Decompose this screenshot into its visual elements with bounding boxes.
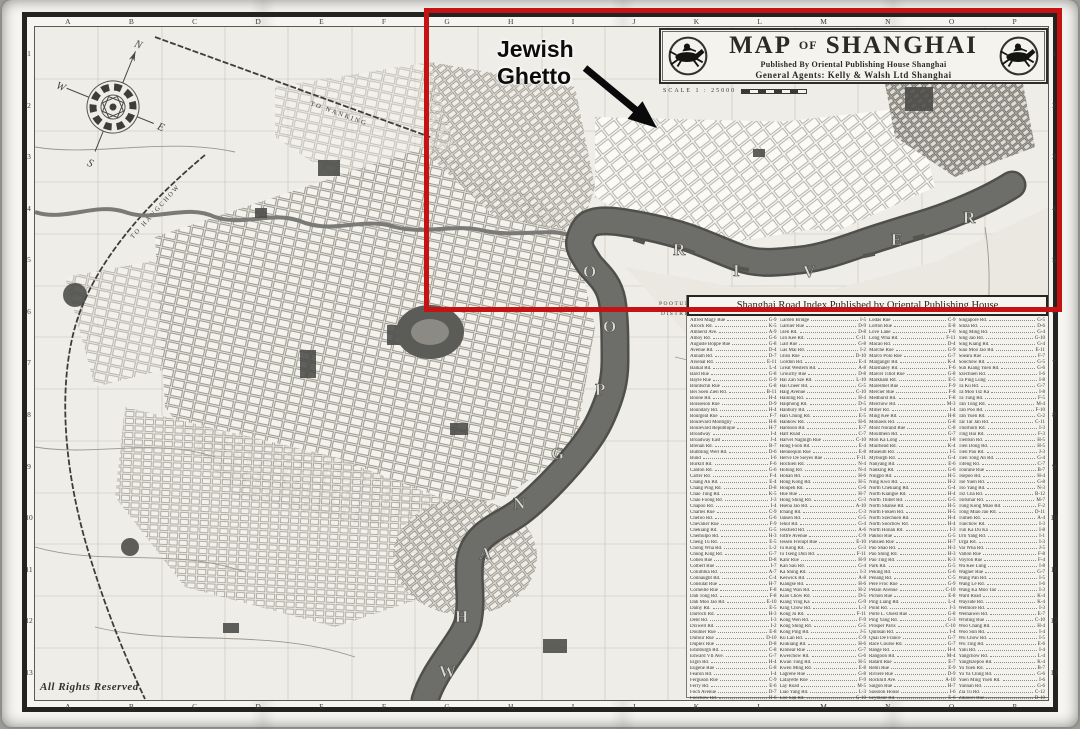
- svg-text:W: W: [439, 662, 456, 681]
- grid-number: 9: [27, 462, 31, 471]
- grid-letter: B: [129, 702, 134, 711]
- grid-letter: C: [192, 702, 197, 711]
- grid-number: 2: [27, 101, 31, 110]
- grid-number: 1: [1052, 49, 1056, 58]
- grid-letter: J: [633, 17, 636, 26]
- grid-letter: K: [694, 17, 699, 26]
- svg-text:V: V: [803, 262, 816, 281]
- grid-number: 3: [27, 152, 31, 161]
- svg-text:R: R: [963, 208, 976, 227]
- grid-letter: E: [319, 702, 324, 711]
- grid-number: 11: [25, 565, 32, 574]
- grid-letter: D: [255, 17, 260, 26]
- grid-numbers-left: 12345678910111213: [24, 28, 34, 698]
- road-index-column-3: Lodas RueC-9Lorton RueE-8Love LaneF-6Lon…: [869, 318, 956, 702]
- grid-letter: N: [885, 702, 890, 711]
- svg-text:H: H: [455, 607, 468, 626]
- svg-text:R: R: [673, 240, 686, 259]
- grid-letter: L: [757, 702, 762, 711]
- svg-text:E: E: [891, 230, 902, 249]
- ghetto-label-line1: Jewish: [497, 36, 574, 63]
- map-title: MAP OF SHANGHAI: [709, 33, 998, 58]
- jockey-horse-icon: [667, 35, 709, 77]
- grid-number: 10: [1050, 513, 1058, 522]
- grid-number: 3: [1052, 152, 1056, 161]
- ghetto-block: [753, 149, 765, 157]
- jewish-ghetto-label: Jewish Ghetto: [497, 36, 574, 90]
- grid-number: 5: [1052, 255, 1056, 264]
- svg-text:I: I: [733, 261, 740, 280]
- grid-number: 5: [27, 255, 31, 264]
- ghetto-arrow-icon: [575, 58, 670, 138]
- grid-letter: E: [319, 17, 324, 26]
- grid-letter: B: [129, 17, 134, 26]
- grid-number: 8: [1052, 410, 1056, 419]
- cartouche-titles: MAP OF SHANGHAI Published By Oriental Pu…: [709, 33, 998, 80]
- grid-letter: C: [192, 17, 197, 26]
- grid-letter: P: [1013, 702, 1017, 711]
- grid-letter: J: [633, 702, 636, 711]
- grid-letter: D: [255, 702, 260, 711]
- grid-number: 13: [1050, 668, 1058, 677]
- grid-letter: F: [382, 17, 386, 26]
- grid-number: 4: [1052, 204, 1056, 213]
- grid-letters-bottom: ABCDEFGHIJKLMNOP: [36, 701, 1046, 711]
- grid-letter: H: [508, 702, 513, 711]
- title-cartouche: MAP OF SHANGHAI Published By Oriental Pu…: [659, 28, 1048, 84]
- road-index-panel: Shanghai Road Index Published by Orienta…: [686, 295, 1048, 698]
- publisher-line: Published By Oriental Publishing House S…: [709, 61, 998, 69]
- grid-letter: G: [444, 17, 449, 26]
- grid-letter: I: [572, 702, 575, 711]
- grid-number: 2: [1052, 101, 1056, 110]
- grid-letters-top: ABCDEFGHIJKLMNOP: [36, 16, 1046, 26]
- grid-letter: G: [444, 702, 449, 711]
- grid-number: 11: [1050, 565, 1057, 574]
- grid-letter: O: [949, 17, 954, 26]
- scale-label: SCALE 1 : 25000: [663, 88, 736, 94]
- road-index-header: Shanghai Road Index Published by Orienta…: [687, 295, 1048, 316]
- grid-letter: M: [820, 702, 827, 711]
- grid-letter: O: [949, 702, 954, 711]
- road-index-column-2: Garden BridgeI-5Garnier RueD-9Glen Rd.D-…: [780, 318, 867, 702]
- svg-text:O: O: [583, 262, 596, 281]
- grid-letter: N: [885, 17, 890, 26]
- grid-number: 4: [27, 204, 31, 213]
- grid-number: 13: [25, 668, 33, 677]
- grid-number: 1: [27, 49, 31, 58]
- road-index-body: Alfred Magy RueG-9Alcock Rd.K-5Amherst A…: [687, 316, 1048, 704]
- road-index-column-4: Singapore Rd.G-5Sinza Rd.D-6Sing Ming Rd…: [959, 318, 1046, 702]
- grid-letter: K: [694, 702, 699, 711]
- grid-numbers-right: 12345678910111213: [1049, 28, 1059, 698]
- scale-bar-graphic: [741, 89, 807, 94]
- grid-letter: L: [757, 17, 762, 26]
- rights-reserved: All Rights Reserved: [40, 681, 139, 693]
- grid-letter: H: [508, 17, 513, 26]
- scale-bar: SCALE 1 : 25000: [663, 88, 807, 94]
- grid-number: 10: [25, 513, 33, 522]
- map-screenshot: TO NANKING TO HANGCHOW: [0, 0, 1080, 729]
- svg-text:P: P: [595, 380, 605, 399]
- grid-number: 6: [1052, 307, 1056, 316]
- grid-letter: I: [572, 17, 575, 26]
- road-index-column-1: Alfred Magy RueG-9Alcock Rd.K-5Amherst A…: [690, 318, 777, 702]
- grid-number: 12: [1050, 616, 1058, 625]
- ghetto-label-line2: Ghetto: [497, 63, 574, 90]
- svg-text:O: O: [603, 317, 616, 336]
- grid-number: 12: [25, 616, 33, 625]
- svg-text:A: A: [479, 544, 492, 563]
- svg-text:N: N: [513, 494, 526, 513]
- grid-number: 9: [1052, 462, 1056, 471]
- grid-letter: F: [382, 702, 386, 711]
- north-station-block: [318, 160, 340, 176]
- grid-letter: A: [65, 17, 70, 26]
- grid-number: 6: [27, 307, 31, 316]
- grid-number: 7: [1052, 358, 1056, 367]
- svg-text:G: G: [551, 444, 564, 463]
- grid-number: 8: [27, 410, 31, 419]
- jockey-horse-icon: [998, 35, 1040, 77]
- agents-line: General Agents: Kelly & Walsh Ltd Shangh…: [709, 71, 998, 80]
- grid-letter: P: [1013, 17, 1017, 26]
- grid-letter: M: [820, 17, 827, 26]
- grid-letter: A: [65, 702, 70, 711]
- grid-number: 7: [27, 358, 31, 367]
